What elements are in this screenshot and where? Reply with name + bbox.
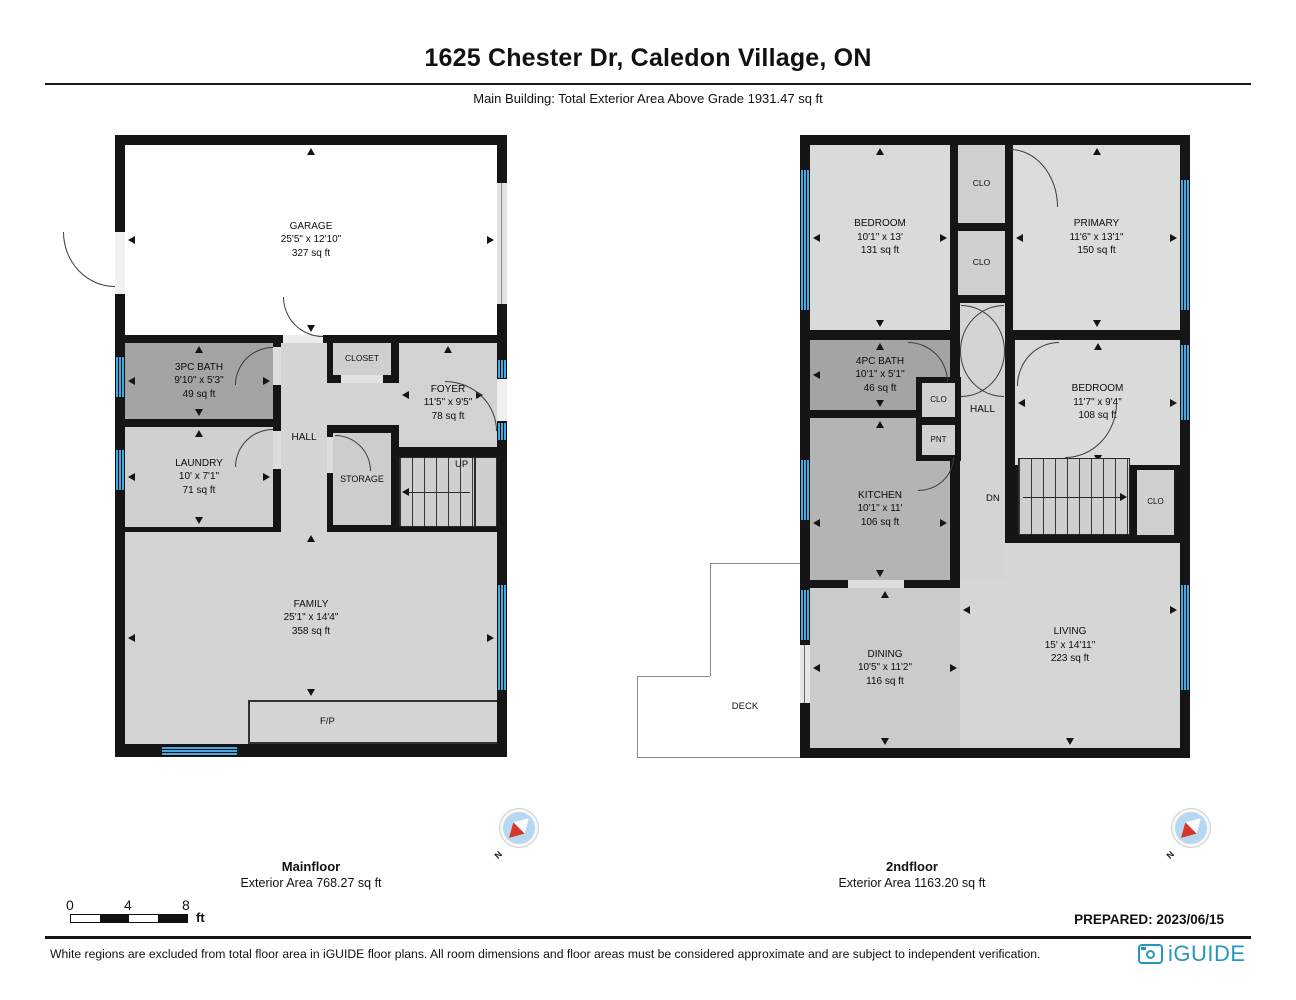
scale-tick: 8 bbox=[182, 897, 190, 913]
room-name: STORAGE bbox=[340, 473, 384, 485]
room-name: FAMILY bbox=[284, 598, 339, 612]
room-name: PNT bbox=[931, 435, 947, 446]
garage-side-door-opening bbox=[115, 232, 125, 294]
room-name: HALL bbox=[960, 403, 1005, 417]
dimension-arrow bbox=[1018, 399, 1025, 407]
page-title: 1625 Chester Dr, Caledon Village, ON bbox=[0, 44, 1296, 73]
scale-tick: 4 bbox=[124, 897, 132, 913]
room-dims: 10'5" x 11'2" bbox=[858, 661, 912, 675]
dimension-arrow bbox=[876, 148, 884, 155]
floor-area: Exterior Area 768.27 sq ft bbox=[115, 876, 507, 890]
window bbox=[115, 450, 125, 490]
camera-lens-icon bbox=[1146, 950, 1155, 959]
scale-unit: ft bbox=[196, 910, 205, 925]
compass-north-label: N bbox=[1164, 849, 1176, 861]
room-name: CLO bbox=[930, 395, 946, 406]
disclaimer-text: White regions are excluded from total fl… bbox=[50, 947, 1040, 961]
deck-sliding-door bbox=[800, 643, 810, 705]
footer-divider bbox=[45, 936, 1251, 939]
scale-segment bbox=[158, 915, 187, 922]
floor-name: Mainfloor bbox=[115, 859, 507, 874]
floor-name: 2ndfloor bbox=[700, 859, 1124, 874]
door-arc bbox=[63, 232, 115, 287]
room-dims: 15' x 14'11" bbox=[1045, 639, 1096, 653]
page-subtitle: Main Building: Total Exterior Area Above… bbox=[0, 91, 1296, 106]
hall-walkway bbox=[327, 383, 399, 425]
fireplace: F/P bbox=[248, 700, 497, 744]
dimension-arrow bbox=[307, 689, 315, 696]
dimension-arrow bbox=[128, 236, 135, 244]
laundry-door-opening bbox=[273, 431, 281, 469]
room-name: BEDROOM bbox=[854, 217, 906, 231]
room-dims: 25'5" x 12'10" bbox=[281, 233, 341, 247]
storage-door-opening bbox=[327, 437, 333, 473]
dimension-arrow bbox=[876, 343, 884, 350]
window bbox=[497, 360, 507, 378]
room-area: 106 sq ft bbox=[858, 516, 903, 530]
dimension-arrow bbox=[940, 234, 947, 242]
closet-door bbox=[341, 375, 383, 383]
dimension-arrow bbox=[813, 234, 820, 242]
room-area: 116 sq ft bbox=[858, 675, 912, 689]
window bbox=[1180, 345, 1190, 420]
dimension-arrow bbox=[195, 430, 203, 437]
stairs-down-label: DN bbox=[986, 493, 1000, 504]
dimension-arrow bbox=[876, 400, 884, 407]
window bbox=[800, 460, 810, 520]
room-name: 3PC BATH bbox=[174, 361, 223, 375]
dimension-arrow bbox=[1093, 320, 1101, 327]
scale-segment bbox=[129, 915, 158, 922]
scale-tick: 0 bbox=[66, 897, 74, 913]
deck-outline bbox=[710, 563, 800, 564]
room-closet: CLO bbox=[1137, 470, 1174, 535]
window bbox=[1180, 585, 1190, 690]
window bbox=[162, 746, 237, 756]
dimension-arrow bbox=[1170, 399, 1177, 407]
room-dims: 9'10" x 5'3" bbox=[174, 374, 223, 388]
dimension-arrow bbox=[881, 591, 889, 598]
dimension-arrow bbox=[307, 148, 315, 155]
deck-outline bbox=[637, 757, 800, 758]
iguide-logo: iGUIDE bbox=[1138, 941, 1246, 967]
dimension-arrow bbox=[487, 236, 494, 244]
dimension-arrow bbox=[1093, 148, 1101, 155]
scale-bar-segments bbox=[70, 914, 188, 923]
stairs-up-label: UP bbox=[455, 459, 468, 470]
dimension-arrow bbox=[876, 320, 884, 327]
dimension-arrow bbox=[813, 664, 820, 672]
compass-icon: N bbox=[498, 809, 542, 853]
room-dims: 11'6" x 13'1" bbox=[1069, 231, 1123, 245]
dimension-arrow bbox=[881, 738, 889, 745]
mainfloor-plan: GARAGE 25'5" x 12'10" 327 sq ft 3PC BATH… bbox=[115, 135, 507, 757]
secondfloor-plan: LIVING 15' x 14'11" 223 sq ft DINING 10'… bbox=[800, 135, 1190, 758]
room-bedroom: BEDROOM 10'1" x 13' 131 sq ft bbox=[810, 145, 950, 330]
dimension-arrow bbox=[1170, 234, 1177, 242]
room-dims: 10'1" x 5'1" bbox=[855, 368, 904, 382]
room-closet: CLO bbox=[922, 383, 955, 417]
secondfloor-caption: 2ndfloor Exterior Area 1163.20 sq ft bbox=[700, 859, 1124, 890]
room-name: DINING bbox=[858, 648, 912, 662]
camera-notch bbox=[1141, 947, 1146, 950]
window bbox=[115, 357, 125, 397]
window bbox=[800, 170, 810, 310]
room-dining: DINING 10'5" x 11'2" 116 sq ft bbox=[810, 588, 960, 748]
room-name: CLO bbox=[1147, 497, 1163, 508]
fireplace-label: F/P bbox=[320, 716, 335, 727]
room-name: HALL bbox=[291, 431, 316, 445]
room-name: LIVING bbox=[1045, 625, 1096, 639]
room-name: CLO bbox=[973, 178, 990, 189]
room-name: LAUNDRY bbox=[175, 457, 223, 471]
iguide-logo-text: iGUIDE bbox=[1168, 941, 1246, 967]
dimension-arrow bbox=[1066, 738, 1074, 745]
header-divider bbox=[45, 83, 1251, 85]
prepared-date: PREPARED: 2023/06/15 bbox=[1074, 912, 1224, 927]
room-area: 327 sq ft bbox=[281, 247, 341, 261]
room-dims: 25'1" x 14'4" bbox=[284, 611, 339, 625]
room-area: 71 sq ft bbox=[175, 484, 223, 498]
garage-door bbox=[497, 180, 507, 307]
room-area: 358 sq ft bbox=[284, 625, 339, 639]
kitchen-dining-opening bbox=[848, 580, 904, 588]
dimension-arrow bbox=[128, 473, 135, 481]
stair-direction-arrow bbox=[1120, 493, 1127, 501]
dimension-arrow bbox=[813, 371, 820, 379]
room-name: KITCHEN bbox=[858, 489, 903, 503]
dimension-arrow bbox=[940, 519, 947, 527]
room-name: CLOSET bbox=[345, 353, 379, 364]
dimension-arrow bbox=[128, 634, 135, 642]
deck-outline bbox=[710, 563, 711, 676]
room-pantry: PNT bbox=[922, 425, 955, 455]
scale-segment bbox=[71, 915, 100, 922]
deck-outline bbox=[637, 676, 638, 758]
room-closet: CLO bbox=[958, 145, 1005, 223]
iguide-camera-icon bbox=[1138, 944, 1163, 964]
dimension-arrow bbox=[195, 409, 203, 416]
stairs-down bbox=[1018, 458, 1130, 535]
window bbox=[497, 585, 507, 690]
scale-bar: 0 4 8 ft bbox=[70, 897, 230, 935]
dimension-arrow bbox=[1016, 234, 1023, 242]
stair-landing bbox=[475, 457, 497, 527]
room-dims: 10' x 7'1" bbox=[175, 470, 223, 484]
room-dims: 10'1" x 11' bbox=[858, 502, 903, 516]
dimension-arrow bbox=[444, 346, 452, 353]
room-name: 4PC BATH bbox=[855, 355, 904, 369]
room-name: PRIMARY bbox=[1069, 217, 1123, 231]
room-area: 46 sq ft bbox=[855, 382, 904, 396]
room-name: CLO bbox=[973, 257, 990, 268]
dimension-arrow bbox=[876, 421, 884, 428]
front-door-opening bbox=[497, 379, 507, 421]
dimension-arrow bbox=[876, 570, 884, 577]
stair-direction-arrow bbox=[402, 488, 409, 496]
dimension-arrow bbox=[950, 664, 957, 672]
dimension-arrow bbox=[402, 391, 409, 399]
room-area: 223 sq ft bbox=[1045, 652, 1096, 666]
room-area: 131 sq ft bbox=[854, 244, 906, 258]
scale-segment bbox=[100, 915, 129, 922]
floor-area: Exterior Area 1163.20 sq ft bbox=[700, 876, 1124, 890]
dimension-arrow bbox=[195, 517, 203, 524]
room-closet: CLO bbox=[958, 231, 1005, 295]
deck-outline bbox=[637, 676, 710, 677]
dimension-arrow bbox=[963, 606, 970, 614]
room-area: 49 sq ft bbox=[174, 388, 223, 402]
room-dims: 10'1" x 13' bbox=[854, 231, 906, 245]
window bbox=[497, 423, 507, 440]
window bbox=[800, 590, 810, 640]
compass-icon: N bbox=[1170, 809, 1214, 853]
room-closet: CLOSET bbox=[333, 343, 391, 375]
room-area: 150 sq ft bbox=[1069, 244, 1123, 258]
dimension-arrow bbox=[1170, 606, 1177, 614]
dimension-arrow bbox=[195, 346, 203, 353]
bath-door-opening bbox=[273, 347, 281, 385]
dimension-arrow bbox=[1094, 343, 1102, 350]
room-name: BEDROOM bbox=[1072, 382, 1124, 396]
dimension-arrow bbox=[307, 535, 315, 542]
deck-label: DECK bbox=[722, 701, 768, 712]
floorplan-page: 1625 Chester Dr, Caledon Village, ON Mai… bbox=[0, 0, 1296, 1000]
dimension-arrow bbox=[128, 377, 135, 385]
dimension-arrow bbox=[487, 634, 494, 642]
mainfloor-caption: Mainfloor Exterior Area 768.27 sq ft bbox=[115, 859, 507, 890]
dimension-arrow bbox=[813, 519, 820, 527]
room-name: GARAGE bbox=[281, 220, 341, 234]
window bbox=[1180, 180, 1190, 310]
room-hall: HALL bbox=[281, 343, 327, 532]
dimension-arrow bbox=[263, 473, 270, 481]
